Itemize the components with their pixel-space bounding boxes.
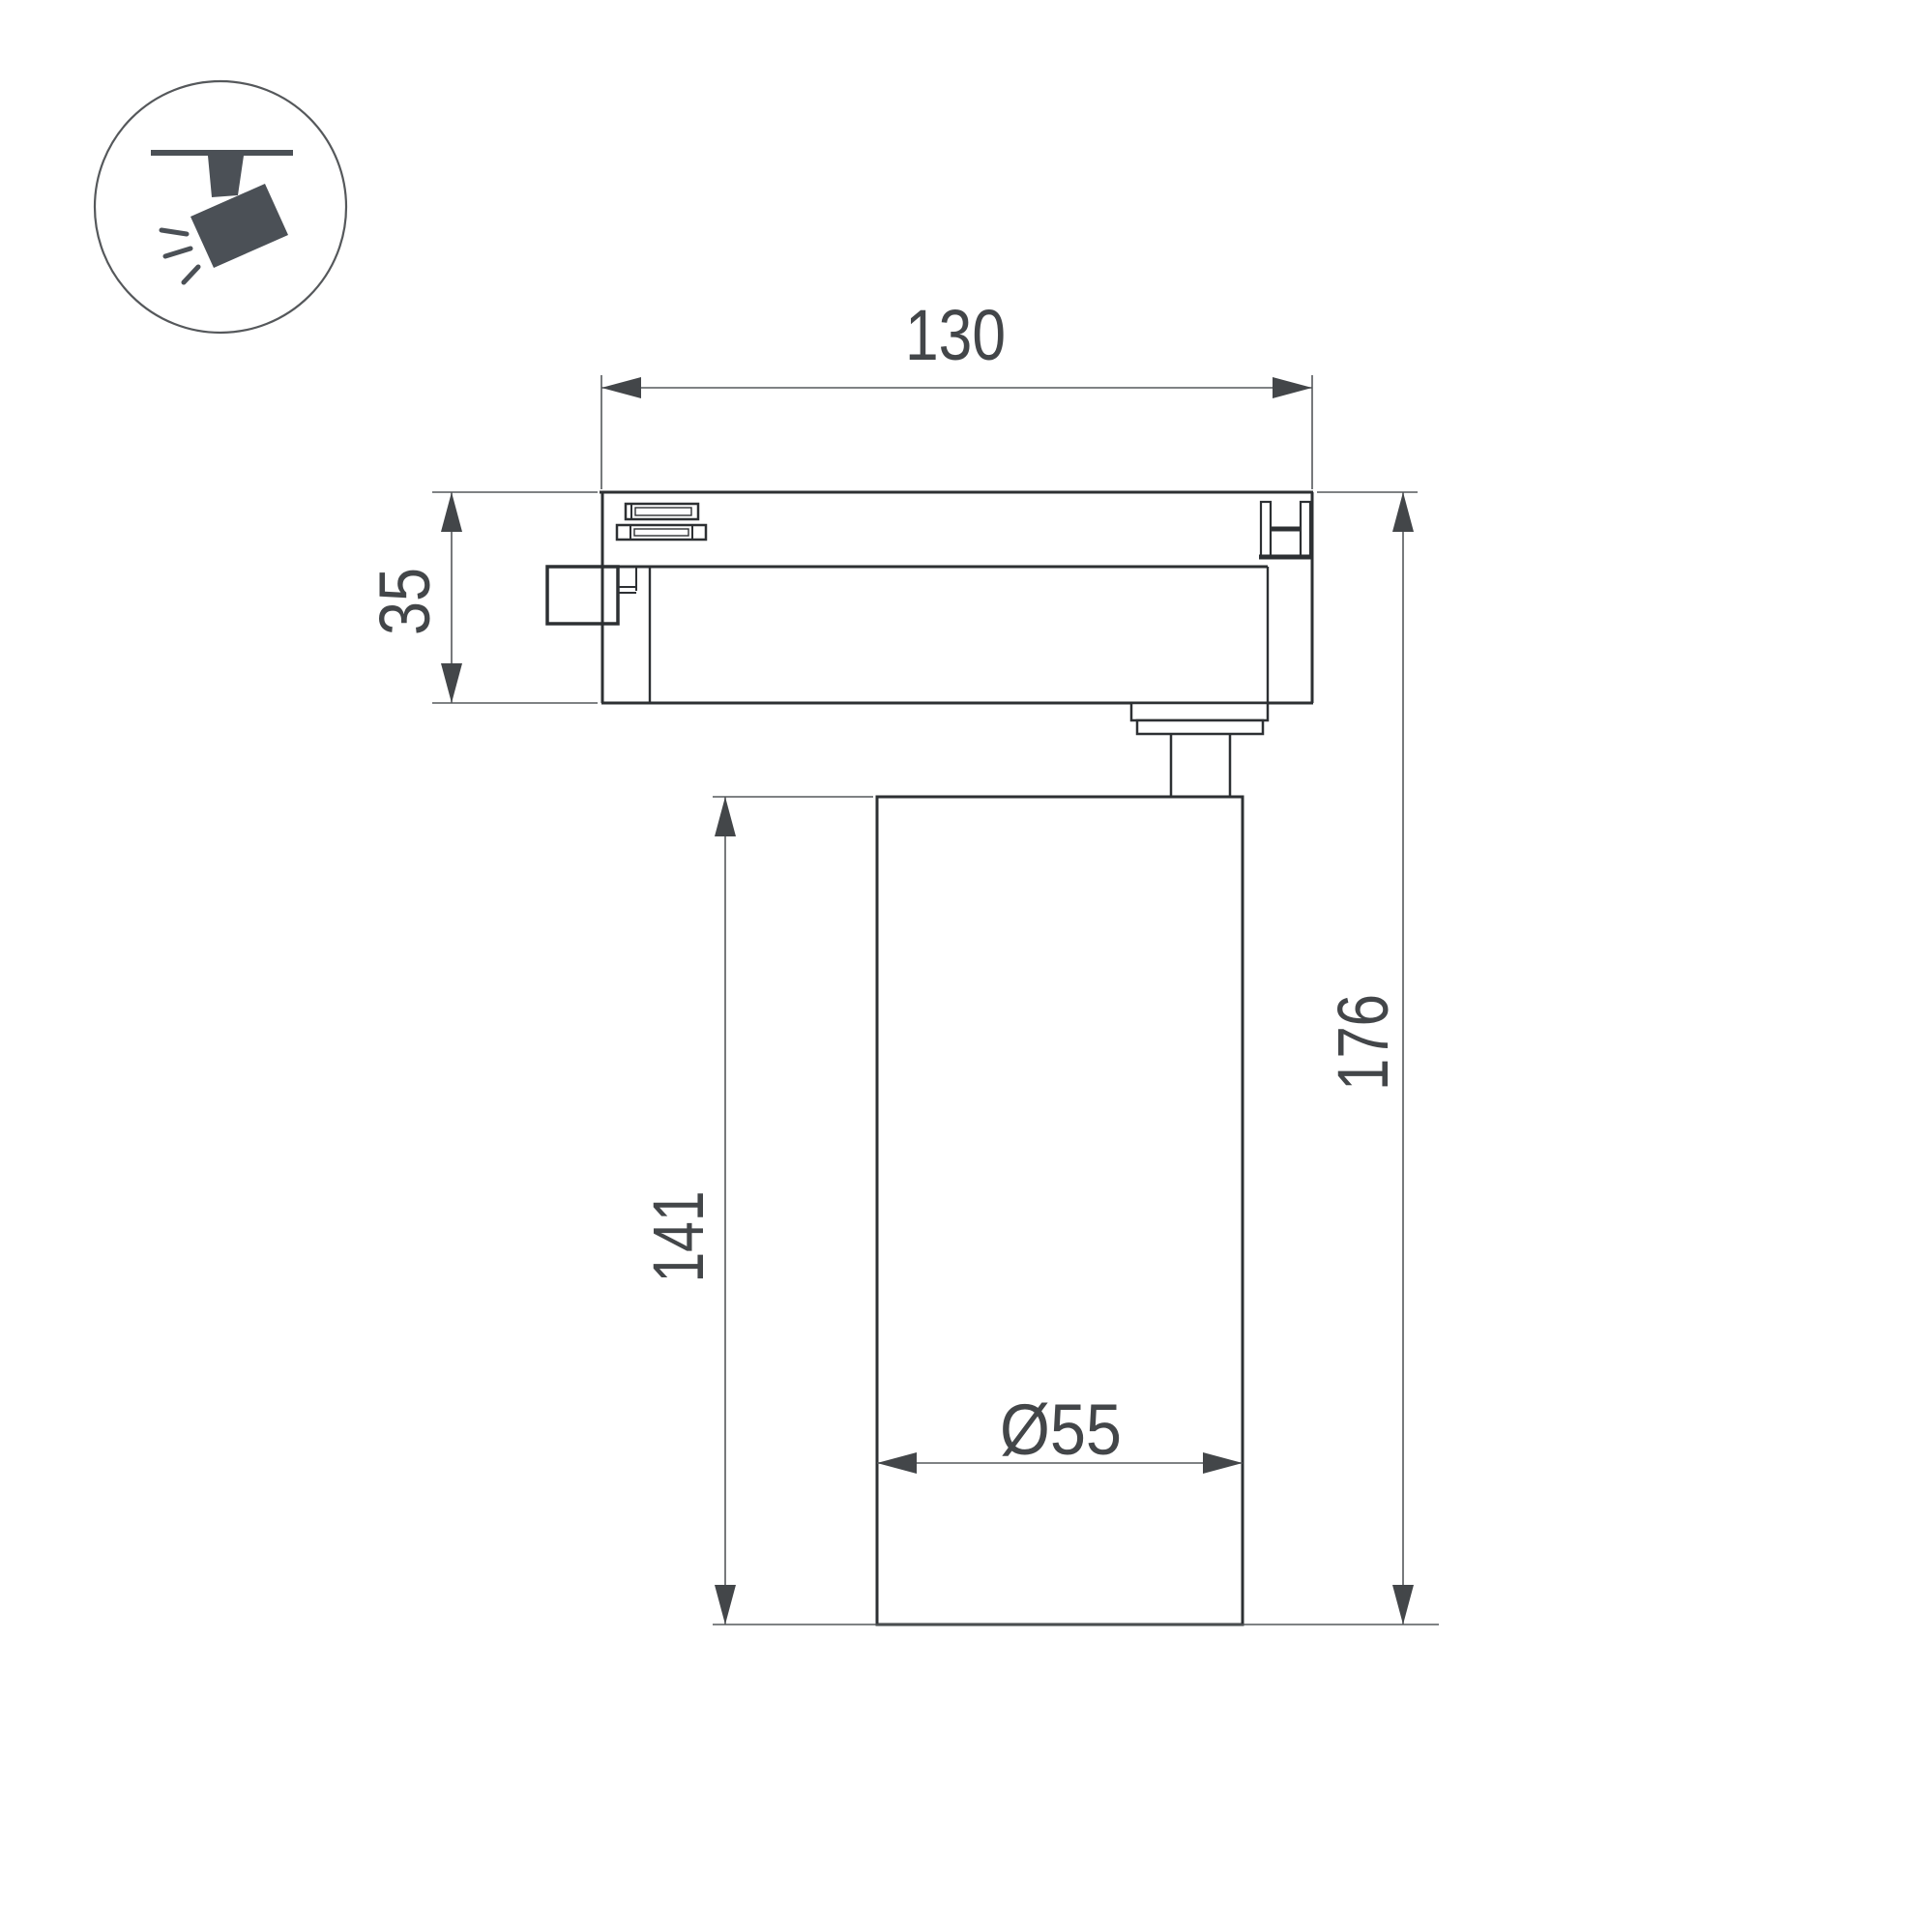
contact-clip-upper-outer xyxy=(626,504,698,519)
dim130-arrow-right xyxy=(1273,377,1312,398)
label-adapter-length: 130 xyxy=(905,295,1006,375)
pivot-neck xyxy=(1131,703,1268,797)
dim141-arrow-down xyxy=(715,1585,736,1625)
track-spotlight-icon xyxy=(95,81,346,333)
lock-lever-box xyxy=(547,567,618,624)
dim141-arrow-up xyxy=(715,797,736,836)
end-clip-bracket xyxy=(1259,502,1311,558)
drawing-page: 130 35 141 176 Ø55 xyxy=(0,0,1932,1932)
contact-clip-upper xyxy=(626,504,698,519)
icon-lamp-head xyxy=(190,184,288,268)
dim35-arrow-up xyxy=(441,492,462,532)
dimension-arrows xyxy=(441,377,1414,1625)
dim35-arrow-down xyxy=(441,663,462,703)
dim176-arrow-down xyxy=(1392,1585,1414,1625)
dim55-arrow-left xyxy=(877,1452,917,1474)
dim176-arrow-up xyxy=(1392,492,1414,532)
icon-glyph xyxy=(151,153,293,282)
contact-clip-lower xyxy=(617,525,706,540)
lever-hook-detail xyxy=(617,567,636,593)
label-body-diameter: Ø55 xyxy=(1000,1390,1122,1470)
dim130-arrow-left xyxy=(601,377,641,398)
icon-light-rays xyxy=(161,230,198,282)
track-adapter xyxy=(547,492,1313,703)
dimension-labels: 130 35 141 176 Ø55 xyxy=(365,295,1403,1470)
label-adapter-height: 35 xyxy=(365,568,445,635)
label-body-height: 141 xyxy=(638,1191,718,1283)
dim-body-height xyxy=(713,797,873,1625)
end-clip-right-channel xyxy=(1301,502,1310,558)
dimension-lines xyxy=(432,375,1439,1625)
end-clip-left-channel xyxy=(1261,502,1271,558)
technical-drawing: 130 35 141 176 Ø55 xyxy=(0,0,1932,1932)
dim55-arrow-right xyxy=(1203,1452,1243,1474)
lamp-body xyxy=(877,797,1243,1625)
neck-collar-upper xyxy=(1131,703,1268,720)
neck-collar-lower xyxy=(1137,720,1263,734)
lamp-body-outline xyxy=(877,797,1243,1625)
icon-stem xyxy=(208,156,244,197)
label-overall-height: 176 xyxy=(1323,994,1403,1091)
dim-adapter-length xyxy=(601,375,1312,489)
